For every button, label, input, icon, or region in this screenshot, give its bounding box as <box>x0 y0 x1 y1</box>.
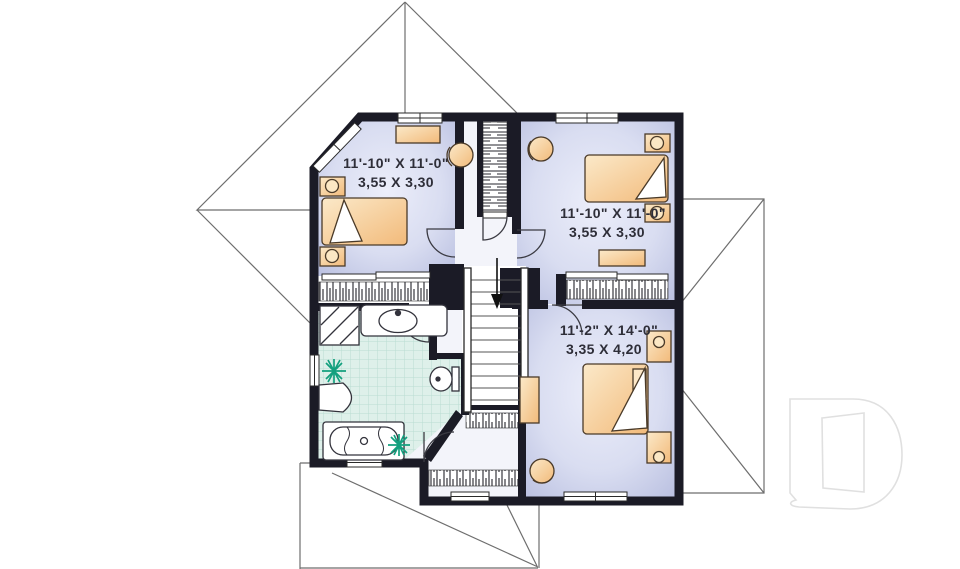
lamp <box>326 250 339 263</box>
toilet-bowl <box>430 367 452 391</box>
label-master-bedroom-metric: 3,35 X 4,20 <box>566 341 642 357</box>
brand-watermark-d <box>790 399 902 509</box>
faucet <box>396 311 401 316</box>
closet-hatch-stair-foot <box>466 413 521 428</box>
lamp <box>654 337 665 348</box>
label-bedroom-top-left-imperial: 11'-10" X 11'-0" <box>343 155 449 171</box>
dresser <box>520 377 539 423</box>
floor-plan-page: { "floor_plan": { "title": "second-floor… <box>0 0 960 569</box>
label-bedroom-top-right-metric: 3,55 X 3,30 <box>569 224 645 240</box>
dresser <box>599 250 645 266</box>
plant <box>388 434 410 456</box>
linen-closet-hatch <box>483 122 507 214</box>
floor-plan-canvas: 11'-10" X 11'-0" 3,55 X 3,30 11'-10" X 1… <box>0 0 960 569</box>
lamp <box>326 180 339 193</box>
dresser <box>396 126 440 143</box>
closet-hatch-top-left <box>319 282 431 301</box>
toilet-tank <box>452 367 459 391</box>
label-bedroom-top-left-metric: 3,55 X 3,30 <box>358 174 434 190</box>
bathtub <box>323 422 404 460</box>
lamp <box>654 452 665 463</box>
armchair <box>449 143 473 167</box>
closet-hatch-walkin <box>429 470 519 486</box>
label-master-bedroom-imperial: 11'-2" X 14'-0" <box>560 322 658 338</box>
armchair <box>529 137 553 161</box>
stair-rail-left <box>464 268 471 412</box>
closet-hatch-top-right <box>566 280 668 299</box>
label-bedroom-top-right-imperial: 11'-10" X 11'-0" <box>560 205 666 221</box>
lamp <box>651 137 664 150</box>
toilet-side <box>319 383 352 412</box>
